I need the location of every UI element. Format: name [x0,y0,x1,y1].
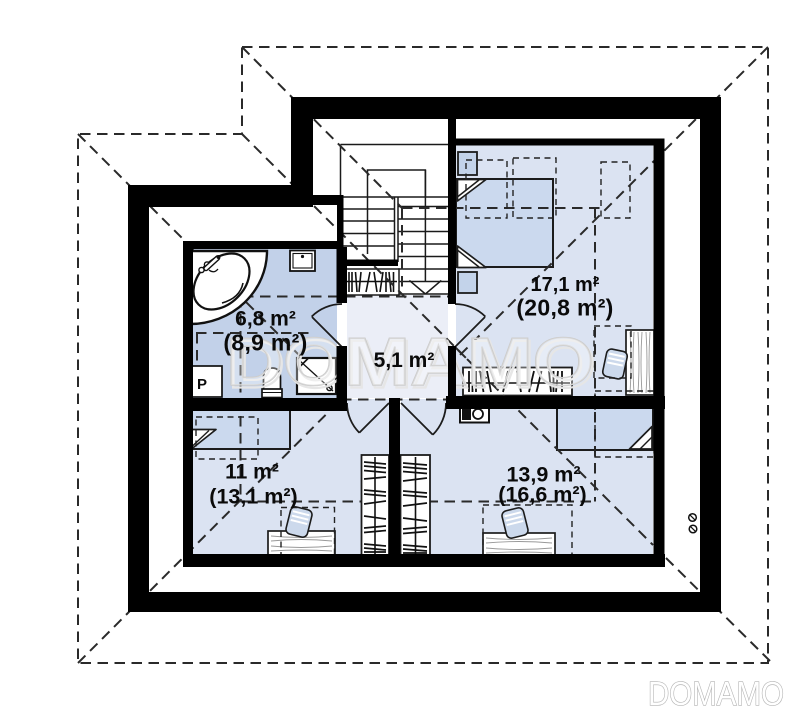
svg-text:(20,8 m²): (20,8 m²) [516,295,613,321]
svg-text:DOMAMO: DOMAMO [648,675,784,711]
svg-text:P: P [197,376,207,393]
svg-text:(8,9 m²): (8,9 m²) [223,330,307,356]
svg-text:(16,6 m²): (16,6 m²) [498,483,586,507]
svg-text:11 m²: 11 m² [225,461,279,484]
svg-text:6,8 m²: 6,8 m² [235,308,296,331]
svg-text:17,1 m²: 17,1 m² [531,274,600,296]
svg-text:5,1 m²: 5,1 m² [374,349,435,372]
svg-text:(13,1 m²): (13,1 m²) [209,485,297,509]
